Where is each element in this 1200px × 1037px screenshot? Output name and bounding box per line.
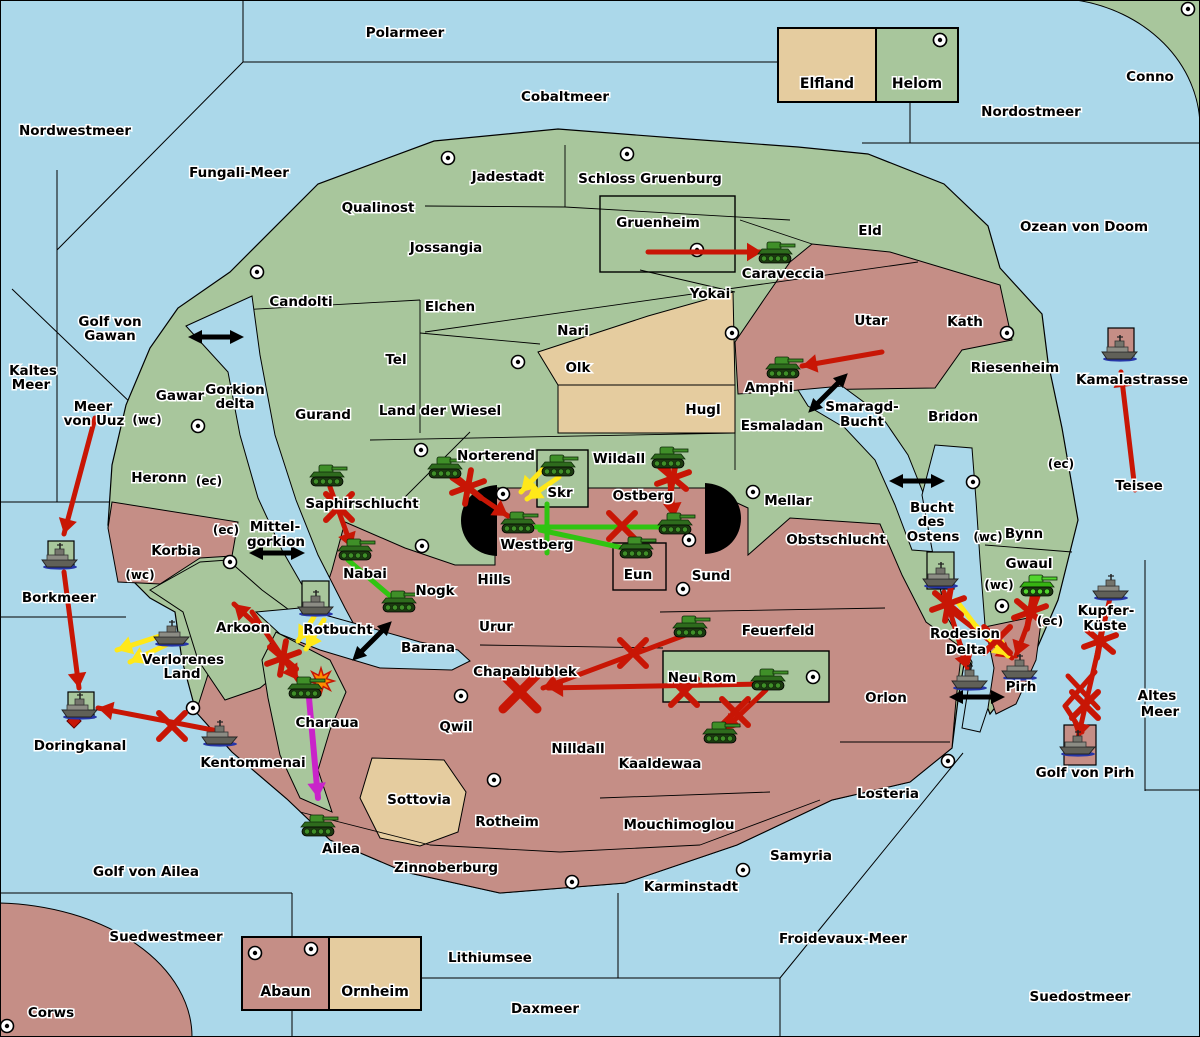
sea-region-label: des — [918, 514, 945, 530]
land-region-label: Bridon — [928, 409, 978, 425]
land-region-label: Hugl — [685, 402, 720, 418]
legend-label: Helom — [892, 76, 942, 92]
city-marker — [967, 476, 980, 489]
sea-region-label: Doringkanal — [34, 738, 126, 754]
land-region-label: Nari — [557, 323, 589, 339]
land-region-label: Utar — [854, 313, 888, 329]
land-region-label: Esmaladan — [741, 418, 824, 434]
land-region-label: Gruenheim — [616, 215, 700, 231]
sea-region-label: Suedostmeer — [1030, 989, 1131, 1005]
sea-region-label: Altes — [1138, 688, 1177, 704]
city-marker — [442, 152, 455, 165]
strategy-map-canvas[interactable]: ElflandHelomAbaunOrnheimPolarmeerCobaltm… — [0, 0, 1200, 1037]
land-region-label: Karminstadt — [644, 879, 739, 895]
land-region-label: Corws — [28, 1005, 74, 1021]
sea-region-label: delta — [215, 396, 254, 412]
land-region-label: Feuerfeld — [742, 623, 815, 639]
land-region-label: Samyria — [770, 848, 832, 864]
land-region-label: Losteria — [857, 786, 919, 802]
land-region-label: Charaua — [295, 715, 358, 731]
land-region-label: Qualinost — [342, 200, 415, 216]
sea-region-label: Ozean von Doom — [1020, 219, 1148, 235]
city-marker — [415, 444, 428, 457]
city-marker — [934, 34, 947, 47]
city-marker — [747, 486, 760, 499]
sea-region-label: Golf von Ailea — [93, 864, 199, 880]
land-region-label: Korbia — [151, 543, 201, 559]
sea-region-label: Fungali-Meer — [189, 165, 289, 181]
coast-tag-label: (wc) — [984, 578, 1013, 592]
land-region-label: Orlon — [865, 690, 907, 706]
city-marker — [455, 690, 468, 703]
land-region-label: Barana — [401, 640, 455, 656]
sea-region-label: Golf von Pirh — [1036, 765, 1135, 781]
sea-region-label: Ostens — [907, 529, 960, 545]
city-marker — [416, 540, 429, 553]
land-region-label: Delta — [946, 642, 987, 658]
sea-region-label: Suedwestmeer — [109, 929, 223, 945]
city-marker — [726, 327, 739, 340]
land-region-label: Jossangia — [409, 240, 483, 256]
land-region-label: Mellar — [764, 493, 812, 509]
land-region-label: Nogk — [415, 583, 455, 599]
sea-region-label: Smaragd- — [825, 399, 899, 415]
land-region-label: Wildall — [593, 451, 645, 467]
city-marker — [1182, 3, 1195, 16]
land-region-label: Pirh — [1006, 679, 1037, 695]
legend-label: Abaun — [260, 984, 310, 1000]
sea-region-label: Meer — [1141, 704, 1180, 720]
coast-tag-label: (wc) — [973, 530, 1002, 544]
sea-region-label: Nordwestmeer — [19, 123, 131, 139]
sea-region-label: Teisee — [1115, 478, 1163, 494]
sea-region-label: Borkmeer — [22, 590, 97, 606]
city-marker — [187, 702, 200, 715]
land-region-label: Norterend — [457, 448, 535, 464]
land-region-label: Neu Rom — [668, 670, 737, 686]
sea-region-label: Cobaltmeer — [521, 89, 609, 105]
city-marker — [566, 876, 579, 889]
land-region-label: Riesenheim — [971, 360, 1059, 376]
land-region-label: Sund — [692, 568, 731, 584]
land-region-label: Mouchimoglou — [623, 817, 734, 833]
map-legend: AbaunOrnheim — [242, 937, 421, 1010]
land-region-label: Olk — [565, 360, 591, 376]
sea-region-label: Gawan — [84, 328, 135, 344]
sea-region-label: Polarmeer — [366, 25, 445, 41]
land-region-label: Ostberg — [612, 488, 673, 504]
land-region-label: Rotheim — [475, 814, 539, 830]
sea-region-label: Nordostmeer — [981, 104, 1081, 120]
land-region-label: Conno — [1126, 69, 1174, 85]
land-region-label: Land der Wiesel — [379, 403, 501, 419]
city-marker — [251, 266, 264, 279]
land-region-label: Kath — [947, 314, 983, 330]
land-region-label: Zinnoberburg — [394, 860, 498, 876]
game-map-stage: ElflandHelomAbaunOrnheimPolarmeerCobaltm… — [0, 0, 1200, 1037]
sea-region-label: Froidevaux-Meer — [779, 931, 907, 947]
city-marker — [224, 556, 237, 569]
land-region-label: Eun — [624, 567, 652, 583]
land-region-label: Qwil — [439, 719, 472, 735]
sea-region-label: von Uuz — [64, 413, 125, 429]
city-marker — [737, 864, 750, 877]
legend-label: Ornheim — [341, 984, 409, 1000]
sea-region-label: Kupfer- — [1078, 603, 1135, 619]
land-region-label: Elchen — [425, 299, 475, 315]
land-region-label: Gawar — [156, 388, 205, 404]
coast-tag-label: (ec) — [1048, 457, 1074, 471]
sea-region-label: Bucht — [840, 414, 885, 430]
city-marker — [497, 488, 510, 501]
city-marker — [192, 420, 205, 433]
city-marker — [621, 148, 634, 161]
land-region-label: Schloss Gruenburg — [578, 171, 722, 187]
land-region-label: Sottovia — [387, 792, 451, 808]
land-region-label: Saphirschlucht — [305, 496, 419, 512]
land-region-label: Westberg — [500, 537, 573, 553]
coast-tag-label: (ec) — [213, 523, 239, 537]
city-marker — [996, 600, 1009, 613]
land-region-label: Bynn — [1005, 526, 1043, 542]
sea-region-label: Rotbucht — [303, 622, 373, 638]
legend-label: Elfland — [800, 76, 854, 92]
land-region-label: Rodesion — [930, 626, 1000, 642]
city-marker — [942, 755, 955, 768]
city-marker — [512, 356, 525, 369]
land-region-label: Ailea — [322, 841, 360, 857]
city-marker — [683, 534, 696, 547]
coast-tag-label: (wc) — [125, 568, 154, 582]
city-marker — [807, 671, 820, 684]
land-region-label: Arkoon — [216, 620, 270, 636]
map-legend: ElflandHelom — [778, 28, 958, 102]
sea-region-label: Daxmeer — [511, 1001, 579, 1017]
land-region-label: Land — [164, 666, 201, 682]
land-region-label: Hills — [477, 572, 510, 588]
land-region-label: Jadestadt — [471, 169, 545, 185]
coast-tag-label: (ec) — [196, 474, 222, 488]
city-marker — [249, 947, 262, 960]
land-region-label: Obstschlucht — [786, 532, 886, 548]
sea-region-label: Lithiumsee — [448, 950, 532, 966]
land-region-label: Eld — [858, 223, 882, 239]
coast-tag-label: (wc) — [132, 413, 161, 427]
land-region-label: Nilldall — [551, 741, 604, 757]
sea-region-label: gorkion — [247, 534, 305, 550]
city-marker — [1001, 327, 1014, 340]
land-region-label: Gurand — [295, 407, 351, 423]
city-marker — [305, 943, 318, 956]
sea-region-label: Mittel- — [250, 519, 300, 535]
coast-tag-label: (ec) — [1037, 614, 1063, 628]
city-marker — [1, 1020, 14, 1033]
land-region-label: Caraveccia — [742, 266, 824, 282]
land-region-label: Skr — [547, 485, 573, 501]
land-region-label: Kaaldewaa — [619, 756, 702, 772]
land-region-label: Tel — [385, 352, 406, 368]
land-region-label: Candolti — [269, 294, 332, 310]
land-region-label: Gwaul — [1006, 556, 1053, 572]
land-region-label: Urur — [479, 619, 513, 635]
sea-region-label: Küste — [1083, 618, 1126, 634]
city-marker — [488, 774, 501, 787]
sea-region-label: Kamalastrasse — [1076, 372, 1188, 388]
land-region-label: Chapablublek — [473, 664, 578, 680]
land-region-label: Amphi — [745, 380, 793, 396]
sea-region-label: Meer — [12, 377, 51, 393]
land-region-label: Yokai — [689, 286, 731, 302]
land-region-label: Kentommenai — [200, 755, 305, 771]
land-region-label: Nabai — [343, 566, 387, 582]
city-marker — [677, 583, 690, 596]
land-region-label: Heronn — [131, 470, 187, 486]
